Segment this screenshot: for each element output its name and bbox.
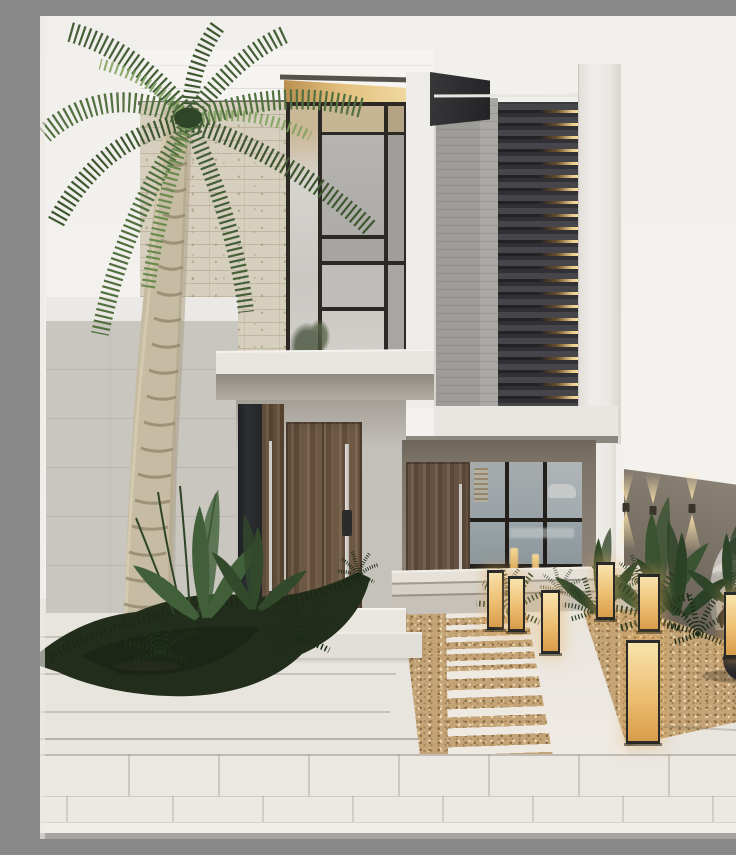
- path-lantern: [541, 590, 560, 654]
- path-lantern: [724, 592, 736, 658]
- photo-edge: [40, 16, 45, 839]
- villa-photo: Photorealistic render of a two-storey mo…: [40, 16, 736, 839]
- path-lantern-large: [626, 640, 660, 744]
- path-lantern: [487, 570, 504, 630]
- path-lantern: [638, 574, 660, 632]
- path-lantern: [508, 576, 525, 632]
- path-lantern: [596, 562, 615, 620]
- left-planting-bed: [40, 486, 378, 696]
